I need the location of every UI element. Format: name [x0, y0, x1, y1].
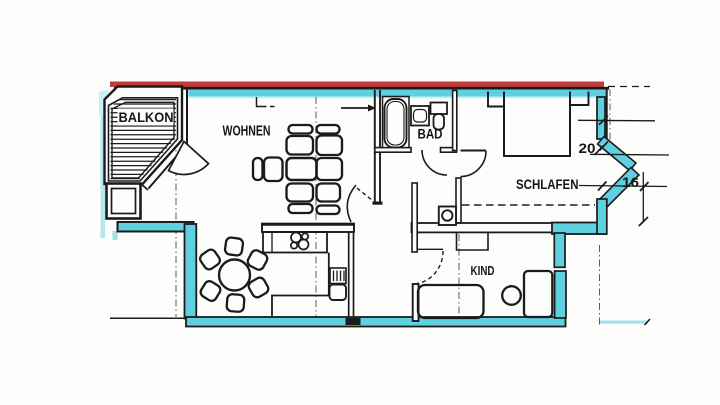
- svg-text:KIND: KIND: [471, 264, 495, 278]
- svg-text:SCHLAFEN: SCHLAFEN: [516, 176, 579, 192]
- svg-text:BALKON: BALKON: [119, 110, 174, 125]
- svg-text:WOHNEN: WOHNEN: [223, 124, 271, 140]
- svg-text:BAD: BAD: [418, 126, 443, 142]
- svg-text:16: 16: [622, 175, 640, 190]
